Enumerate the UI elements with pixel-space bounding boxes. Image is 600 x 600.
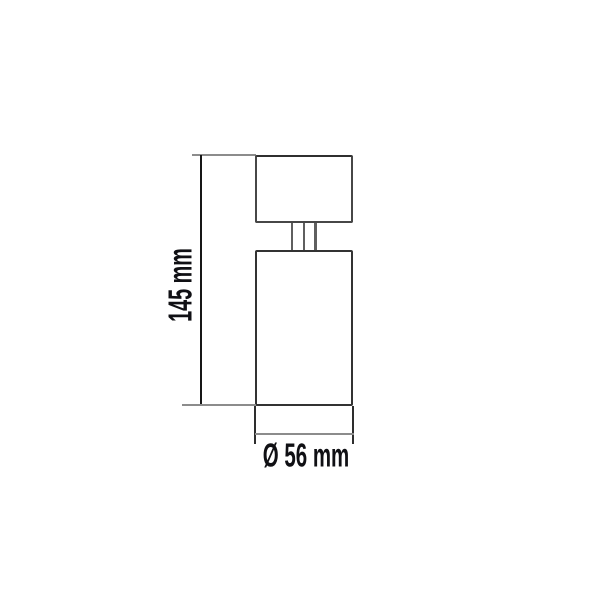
height-extension-line-bottom <box>182 404 256 406</box>
fixture-cylinder-body <box>255 250 353 406</box>
diameter-extension-line-left <box>254 406 256 444</box>
diameter-extension-line-right <box>352 406 354 444</box>
height-dimension-label: 145 mm <box>164 248 197 322</box>
stem-inner-line <box>314 223 316 250</box>
stem-inner-line <box>303 223 305 250</box>
diameter-dimension-label: Ø 56 mm <box>263 439 349 472</box>
fixture-swivel-stem <box>291 223 317 250</box>
diameter-dimension-line <box>255 433 354 435</box>
fixture-mounting-head <box>255 155 353 223</box>
dimension-drawing-canvas: 145 mm Ø 56 mm <box>0 0 600 600</box>
height-dimension-line <box>200 155 202 406</box>
